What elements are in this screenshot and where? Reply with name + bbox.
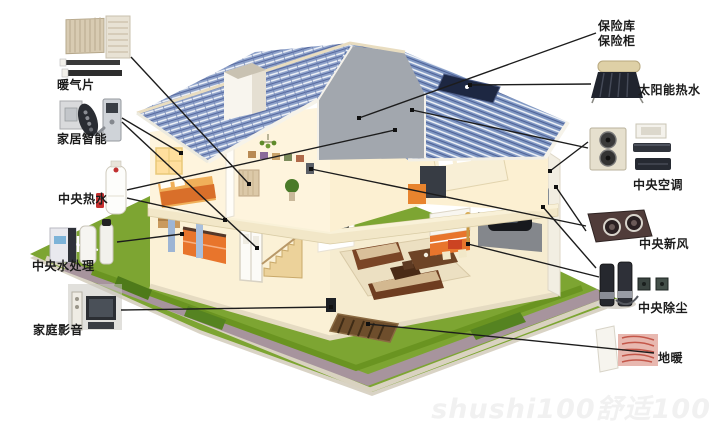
- smart-home-diagram: 暖气片家居智能中央热水中央水处理家庭影音保险库 保险柜太阳能热水中央空调中央新风…: [0, 0, 717, 426]
- callout-label-safe: 保险库 保险柜: [598, 19, 636, 49]
- callout-label-central-vacuum: 中央除尘: [638, 301, 688, 316]
- callout-dot-central-fresh-air: [554, 185, 558, 189]
- callout-dot-central-ac: [548, 169, 552, 173]
- callout-label-floor-heating: 地暖: [658, 351, 683, 366]
- callout-label-central-ac: 中央空调: [633, 178, 683, 193]
- callout-label-central-water-treatment: 中央水处理: [32, 259, 95, 274]
- callout-label-solar-hot-water: 太阳能热水: [638, 83, 701, 98]
- callout-dot-home-av: [329, 305, 333, 309]
- callout-dot-radiator: [247, 182, 251, 186]
- radiator-thumbnail: [60, 16, 130, 77]
- nightstand: [408, 184, 426, 204]
- callout-dot-central-vacuum: [541, 205, 545, 209]
- callout-dot-solar-hot-water: [468, 83, 472, 87]
- callout-line-solar-hot-water: [470, 84, 591, 85]
- callout-label-smart-home: 家居智能: [57, 132, 107, 147]
- water-heater-tank-thumbnail: [106, 161, 126, 214]
- callout-dot-smart-home: [255, 246, 259, 250]
- house-illustration: [0, 0, 717, 426]
- plant: [285, 179, 299, 193]
- callout-dot-floor-heating: [366, 322, 370, 326]
- floor-heating-sample-thumbnail: [596, 326, 658, 372]
- callout-dot-central-vacuum: [466, 242, 470, 246]
- callout-label-home-av: 家庭影音: [33, 323, 83, 338]
- solar-water-heater-thumbnail: [591, 61, 643, 103]
- callout-dot-central-water-treatment: [180, 232, 184, 236]
- callout-dot-central-fresh-air: [309, 167, 313, 171]
- roof-dormer: [224, 63, 266, 120]
- roof: [137, 43, 568, 162]
- callout-label-central-fresh-air: 中央新风: [639, 237, 689, 252]
- callout-dot-safe: [357, 116, 361, 120]
- water-treatment-units-thumbnail: [50, 219, 113, 264]
- callout-dot-central-hot-water: [223, 218, 227, 222]
- callout-dot-central-ac: [410, 108, 414, 112]
- callout-dot-central-hot-water: [393, 128, 397, 132]
- callout-label-radiator: 暖气片: [57, 78, 95, 93]
- ac-units-thumbnail: [590, 124, 671, 170]
- callout-label-central-hot-water: 中央热水: [58, 192, 108, 207]
- callout-dot-smart-home: [179, 151, 183, 155]
- watermark: shushi100舒适100: [431, 387, 711, 426]
